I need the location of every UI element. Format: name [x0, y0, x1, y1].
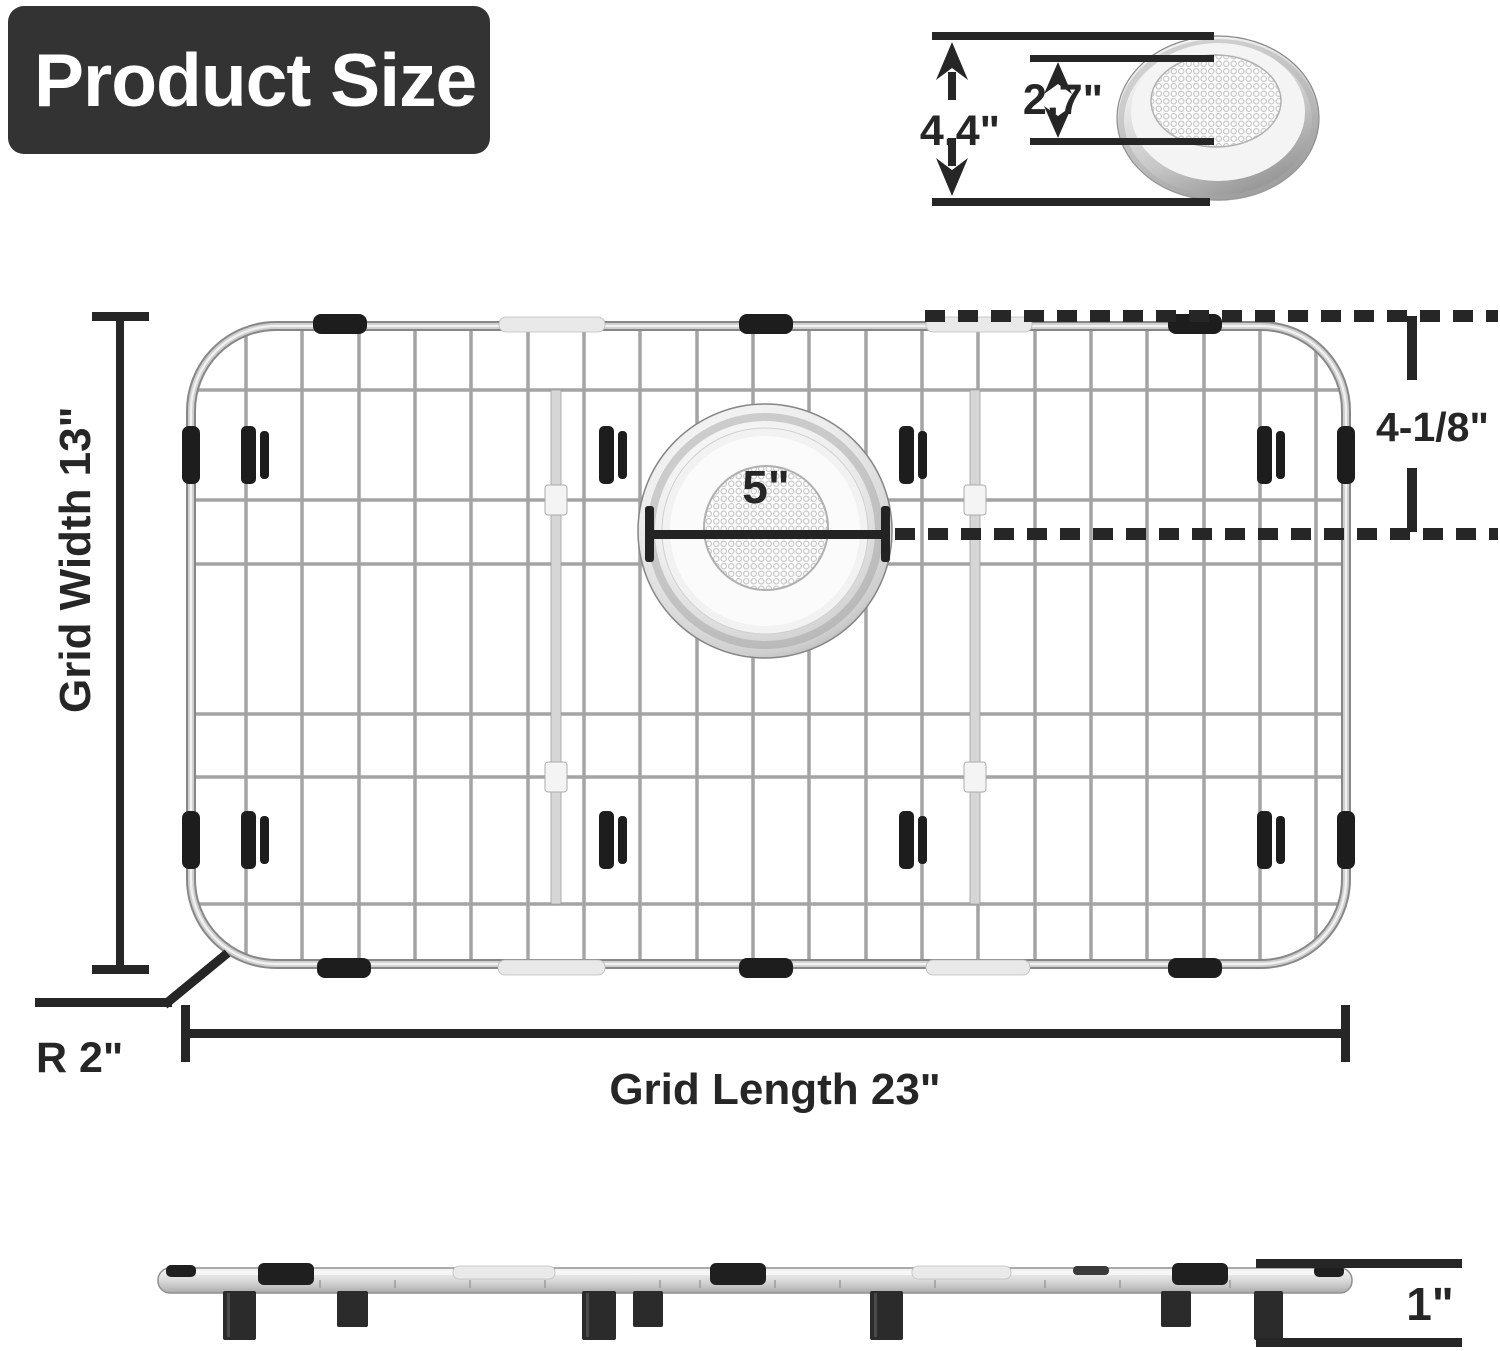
title-box: Product Size [8, 6, 490, 154]
side-height-label: 1" [1390, 1281, 1470, 1327]
corner-radius-label: R 2" [36, 1037, 123, 1080]
drain-offset-label: 4-1/8" [1376, 407, 1489, 448]
sink-grid-side-view [158, 1263, 1352, 1340]
grid-width-dimension [92, 312, 149, 974]
page-title: Product Size [8, 6, 490, 154]
diagram-graphics [0, 0, 1500, 1351]
grid-width-label: Grid Width 13" [54, 413, 98, 713]
strainer-outer-diameter-label: 4.4" [905, 110, 1015, 153]
grid-length-dimension [181, 1005, 1350, 1062]
corner-radius-leader [35, 956, 224, 1007]
side-view-feet [223, 1291, 1283, 1340]
strainer-mesh-diameter-label: 2.7" [1008, 79, 1118, 122]
product-size-diagram: Product Size 4.4" 2.7" Grid Width 13" 5"… [0, 0, 1500, 1351]
drain-diameter-label: 5" [716, 464, 816, 510]
grid-length-label: Grid Length 23" [575, 1068, 975, 1112]
strainer-mesh [1151, 55, 1281, 147]
